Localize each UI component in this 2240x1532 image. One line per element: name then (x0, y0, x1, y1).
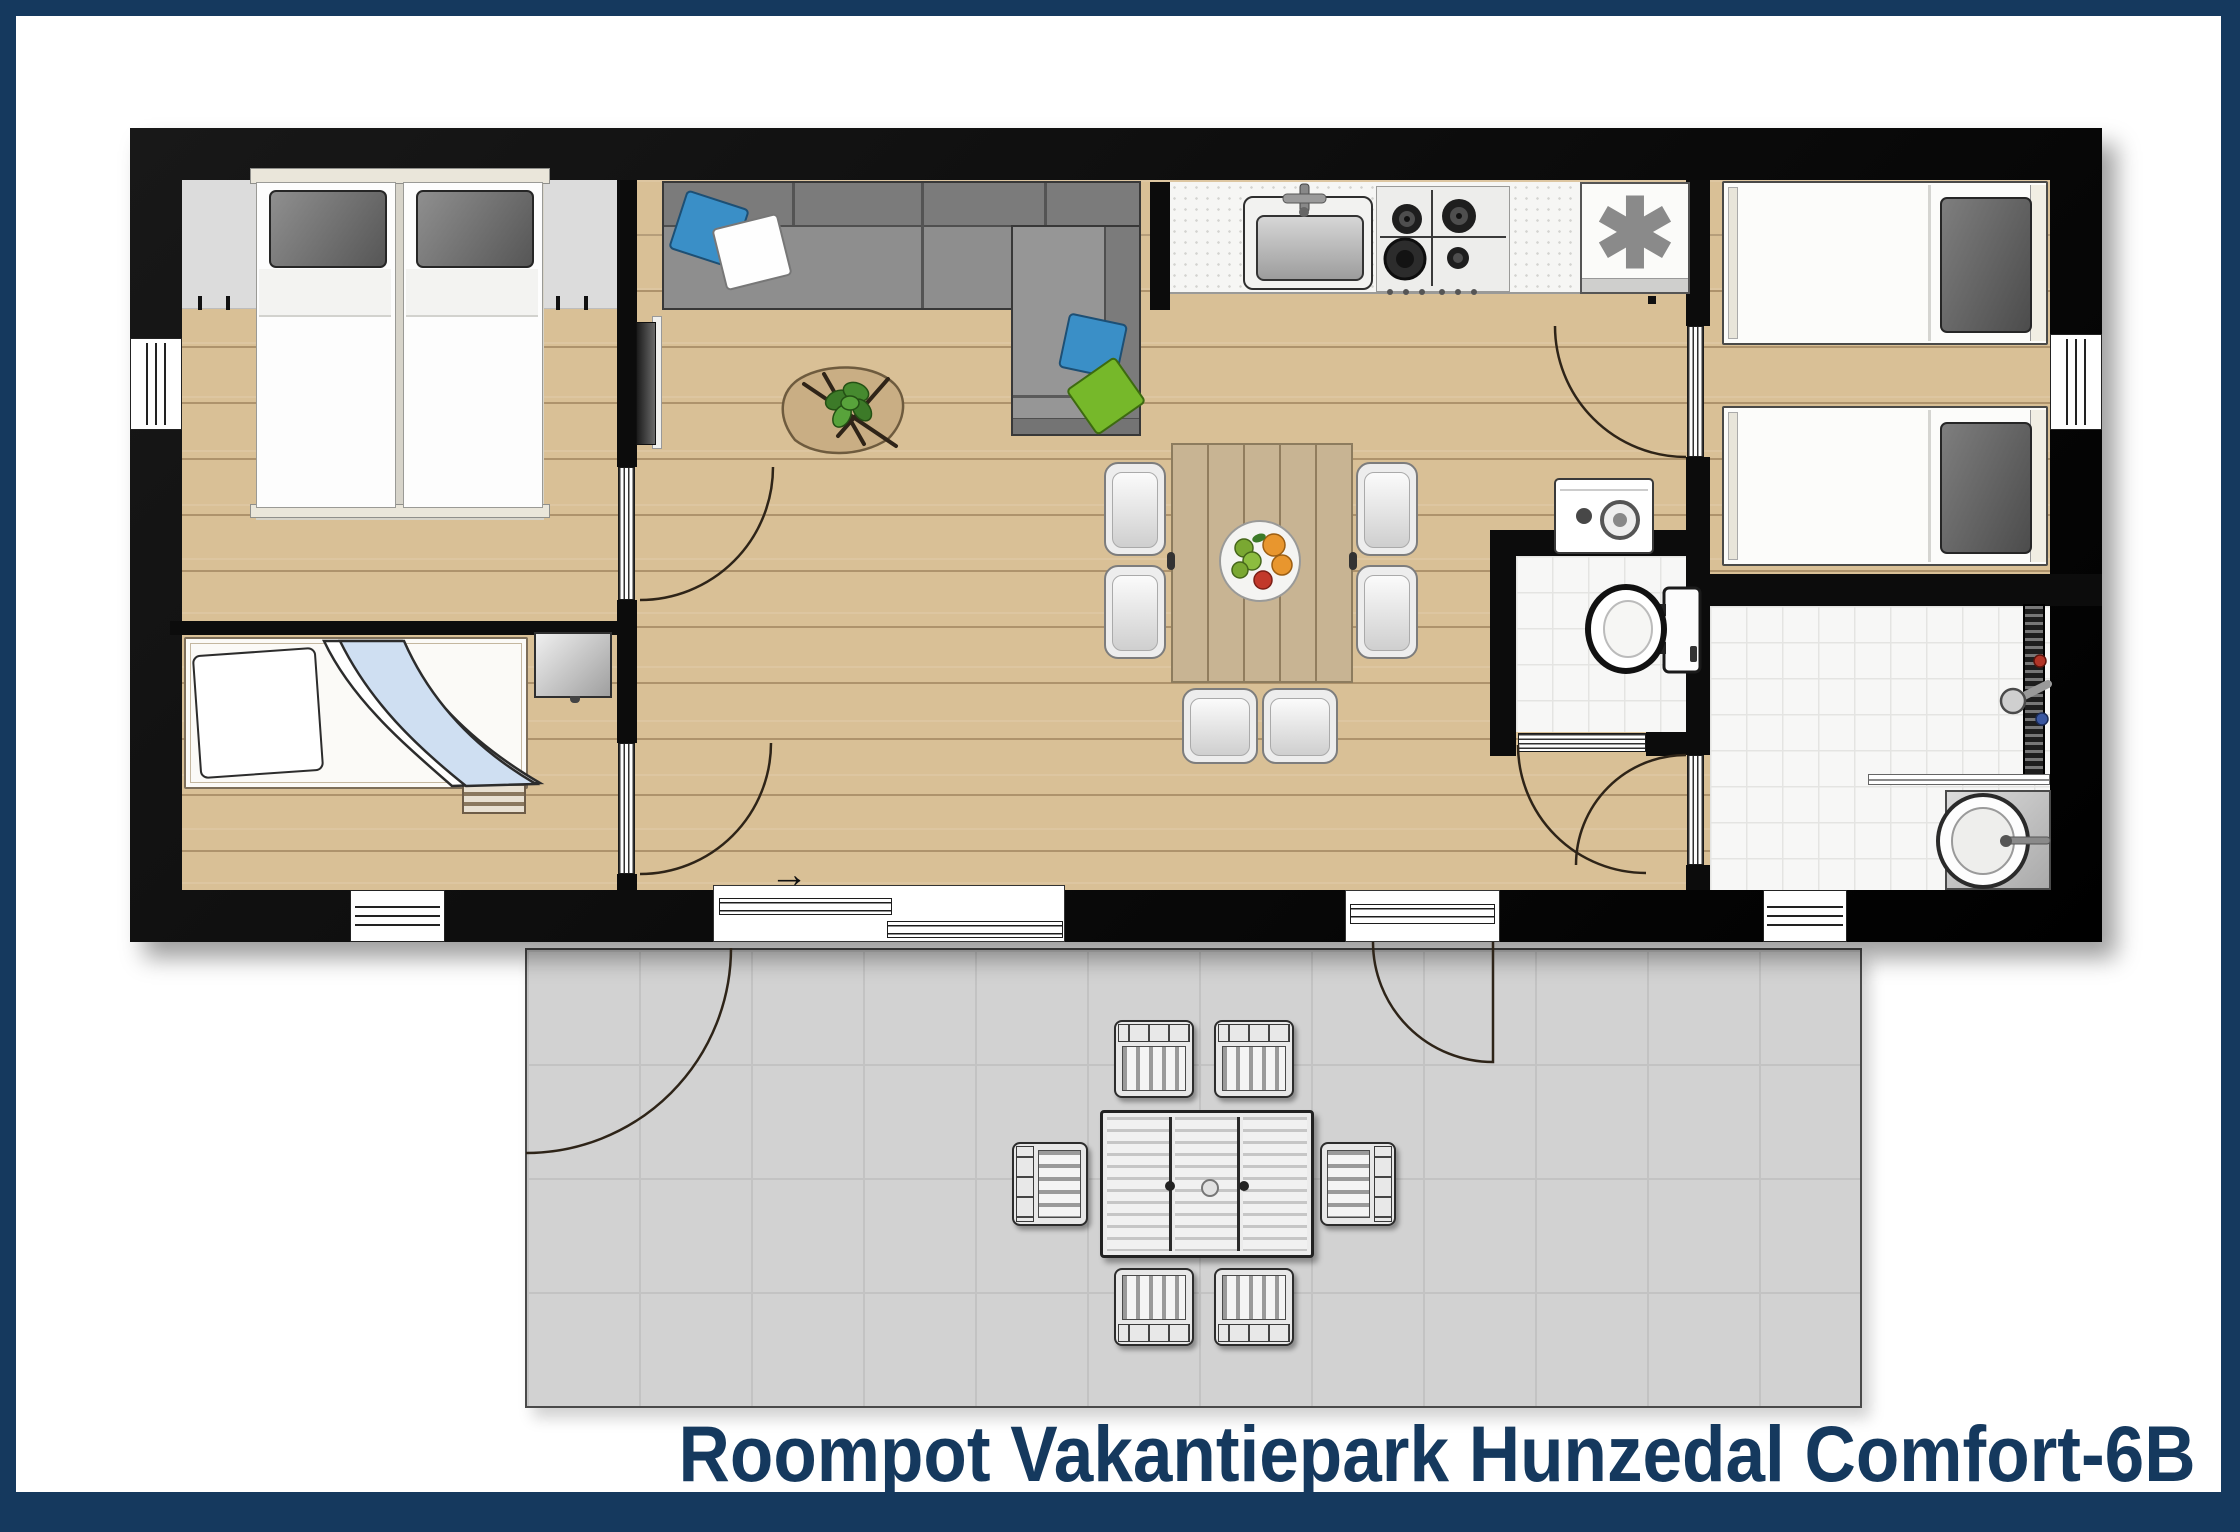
terrace (525, 948, 1862, 1408)
freezer-icon: ✱ (1582, 178, 1688, 290)
boiler-knob-small (1576, 508, 1592, 524)
pillow (416, 190, 534, 268)
toilet-wall-bottom (1490, 732, 1516, 756)
master-bedroom-door (618, 467, 635, 600)
right-bed-top (1722, 181, 2048, 345)
sofa-seam (792, 183, 795, 225)
sofa-seam (1044, 183, 1047, 225)
toilet-door (1518, 733, 1646, 752)
shower-glass-screen (1868, 774, 2050, 785)
kitchen-sink (1243, 196, 1373, 290)
sink-basin (1256, 215, 1364, 281)
window-master-bedroom (130, 338, 182, 430)
pillow-gray (1940, 422, 2032, 554)
terrace-chair-bottom-right (1214, 1268, 1294, 1346)
chair-back (1218, 1324, 1290, 1342)
chair-seat (1190, 698, 1250, 756)
toilet-wall-left (1490, 530, 1516, 756)
kitchen-hob (1376, 186, 1510, 292)
wall-hook (556, 296, 560, 310)
boiler-knob-dot (1613, 513, 1627, 527)
terrace-chair-bottom-left (1114, 1268, 1194, 1346)
bed-foot-bar (1728, 187, 1738, 339)
right-bed-bottom (1722, 406, 2048, 566)
terrace-chair-top-right (1214, 1020, 1294, 1098)
dining-chair (1104, 565, 1166, 659)
entrance-arrow: → (770, 856, 808, 894)
chair-seat (1122, 1275, 1186, 1320)
pillow-gray (1940, 197, 2032, 333)
bed-headboard (2030, 185, 2046, 341)
table-handle (1167, 552, 1175, 570)
table-handle (1349, 552, 1357, 570)
house: → (130, 128, 2102, 942)
chair-back (1016, 1146, 1034, 1222)
boiler (1554, 478, 1654, 554)
single-bedroom-door (618, 743, 635, 874)
window-glass (146, 343, 166, 426)
terrace-chair-left (1012, 1142, 1088, 1226)
chair-seat (1222, 1275, 1286, 1320)
sheet-fold (406, 269, 538, 317)
bed-bench (462, 780, 526, 814)
sheet-fold-line (1928, 185, 1931, 341)
chair-seat (1222, 1046, 1286, 1091)
chair-seat (1112, 575, 1158, 651)
wall-master-living (617, 874, 637, 890)
sliding-door (713, 885, 1065, 942)
bed-foot-bar (1728, 412, 1738, 560)
window-single-bedroom (350, 890, 445, 942)
dining-chair (1182, 688, 1258, 764)
freezer: ✱ (1580, 182, 1690, 294)
window-glass (355, 906, 441, 926)
wall-bedroom-bathroom (1686, 574, 2102, 606)
chair-seat (1270, 698, 1330, 756)
chair-seat (1112, 472, 1158, 548)
dining-table (1171, 443, 1353, 683)
toilet-wall-bottom (1646, 732, 1686, 756)
frame-border-right (2221, 0, 2240, 1532)
table-joint-dot (1165, 1181, 1175, 1191)
kitchen-stub-wall (1150, 182, 1170, 310)
table-joint-dot (1239, 1181, 1249, 1191)
chair-seat (1122, 1046, 1186, 1091)
terrace-table-plank (1107, 1117, 1172, 1251)
hall-exterior-door (1345, 890, 1500, 942)
chair-seat (1327, 1150, 1370, 1218)
terrace-chair-right (1320, 1142, 1396, 1226)
chair-back (1118, 1324, 1190, 1342)
chair-back (1118, 1024, 1190, 1042)
wall-hook (226, 296, 230, 310)
wall-hook (584, 296, 588, 310)
freezer-hinge (1648, 296, 1656, 304)
window-right-bedroom (2050, 334, 2102, 430)
window-bathroom (1763, 890, 1847, 942)
boiler-line (1560, 489, 1648, 491)
wall-hook (198, 296, 202, 310)
bathroom-sink-counter (1945, 790, 2051, 890)
right-bedroom-door (1687, 326, 1704, 457)
chair-seat (1364, 575, 1410, 651)
hall-door-panel (1350, 904, 1495, 924)
sliding-door-panel (887, 921, 1063, 938)
pillow-white (192, 647, 324, 779)
parasol-hole (1201, 1179, 1219, 1197)
frame-border-left (0, 0, 16, 1532)
frame-border-top (0, 0, 2240, 16)
sliding-door-panel (719, 898, 892, 915)
pillow (269, 190, 387, 268)
page-title: Roompot Vakantiepark Hunzedal Comfort-6B (679, 1408, 2196, 1500)
chaise-foot (1013, 418, 1139, 434)
bathroom-door (1687, 755, 1704, 865)
dining-chair (1356, 462, 1418, 556)
chair-seat (1364, 472, 1410, 548)
window-glass (1767, 906, 1842, 926)
wall-hall-bathroom (1686, 865, 1710, 890)
sheet-fold-line (1928, 410, 1931, 562)
terrace-table (1100, 1110, 1314, 1258)
toilet-room-floor (1516, 556, 1686, 732)
wall-master-living (617, 180, 637, 467)
shower-drain-strip (2023, 604, 2045, 776)
master-double-bed (256, 172, 544, 520)
chair-back (1374, 1146, 1392, 1222)
wall-hall-bedroom (1686, 457, 1710, 755)
dining-chair (1104, 462, 1166, 556)
sofa-seam (921, 183, 924, 308)
terrace-table-plank (1243, 1117, 1307, 1251)
terrace-chair-top-left (1114, 1020, 1194, 1098)
chair-seat (1038, 1150, 1081, 1218)
nightstand-knob (570, 696, 580, 703)
dining-chair (1262, 688, 1338, 764)
nightstand (534, 632, 612, 698)
chair-back (1218, 1024, 1290, 1042)
dining-chair (1356, 565, 1418, 659)
tv (636, 322, 656, 445)
boiler-knob-large (1600, 500, 1640, 540)
bed-headboard (2030, 410, 2046, 562)
floorplan-canvas: → (0, 0, 2240, 1532)
sheet-fold (259, 269, 391, 317)
single-bed (184, 637, 528, 789)
window-glass (2066, 339, 2086, 426)
